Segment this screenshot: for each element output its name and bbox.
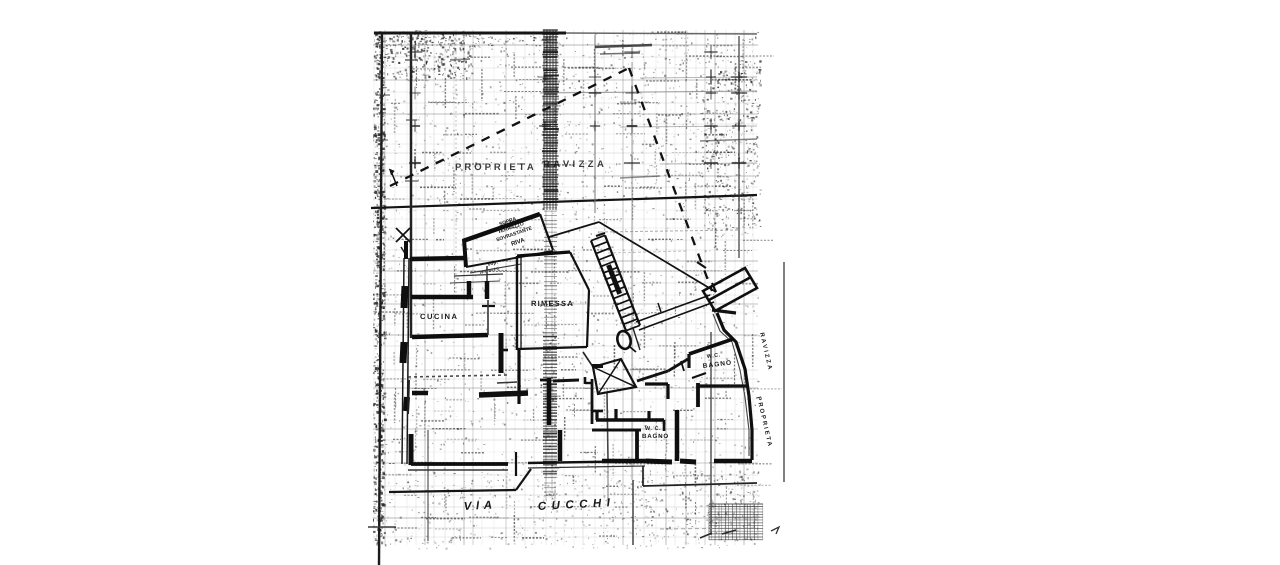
svg-text:RAVIZZA: RAVIZZA	[543, 159, 607, 170]
svg-text:RIMESSA: RIMESSA	[531, 299, 574, 308]
svg-text:BAGNO: BAGNO	[642, 433, 669, 440]
svg-text:CUCINA: CUCINA	[420, 312, 459, 321]
svg-text:VIA: VIA	[464, 499, 497, 513]
svg-text:W. C.: W. C.	[645, 426, 661, 432]
svg-text:PROPRIETA: PROPRIETA	[455, 162, 537, 173]
